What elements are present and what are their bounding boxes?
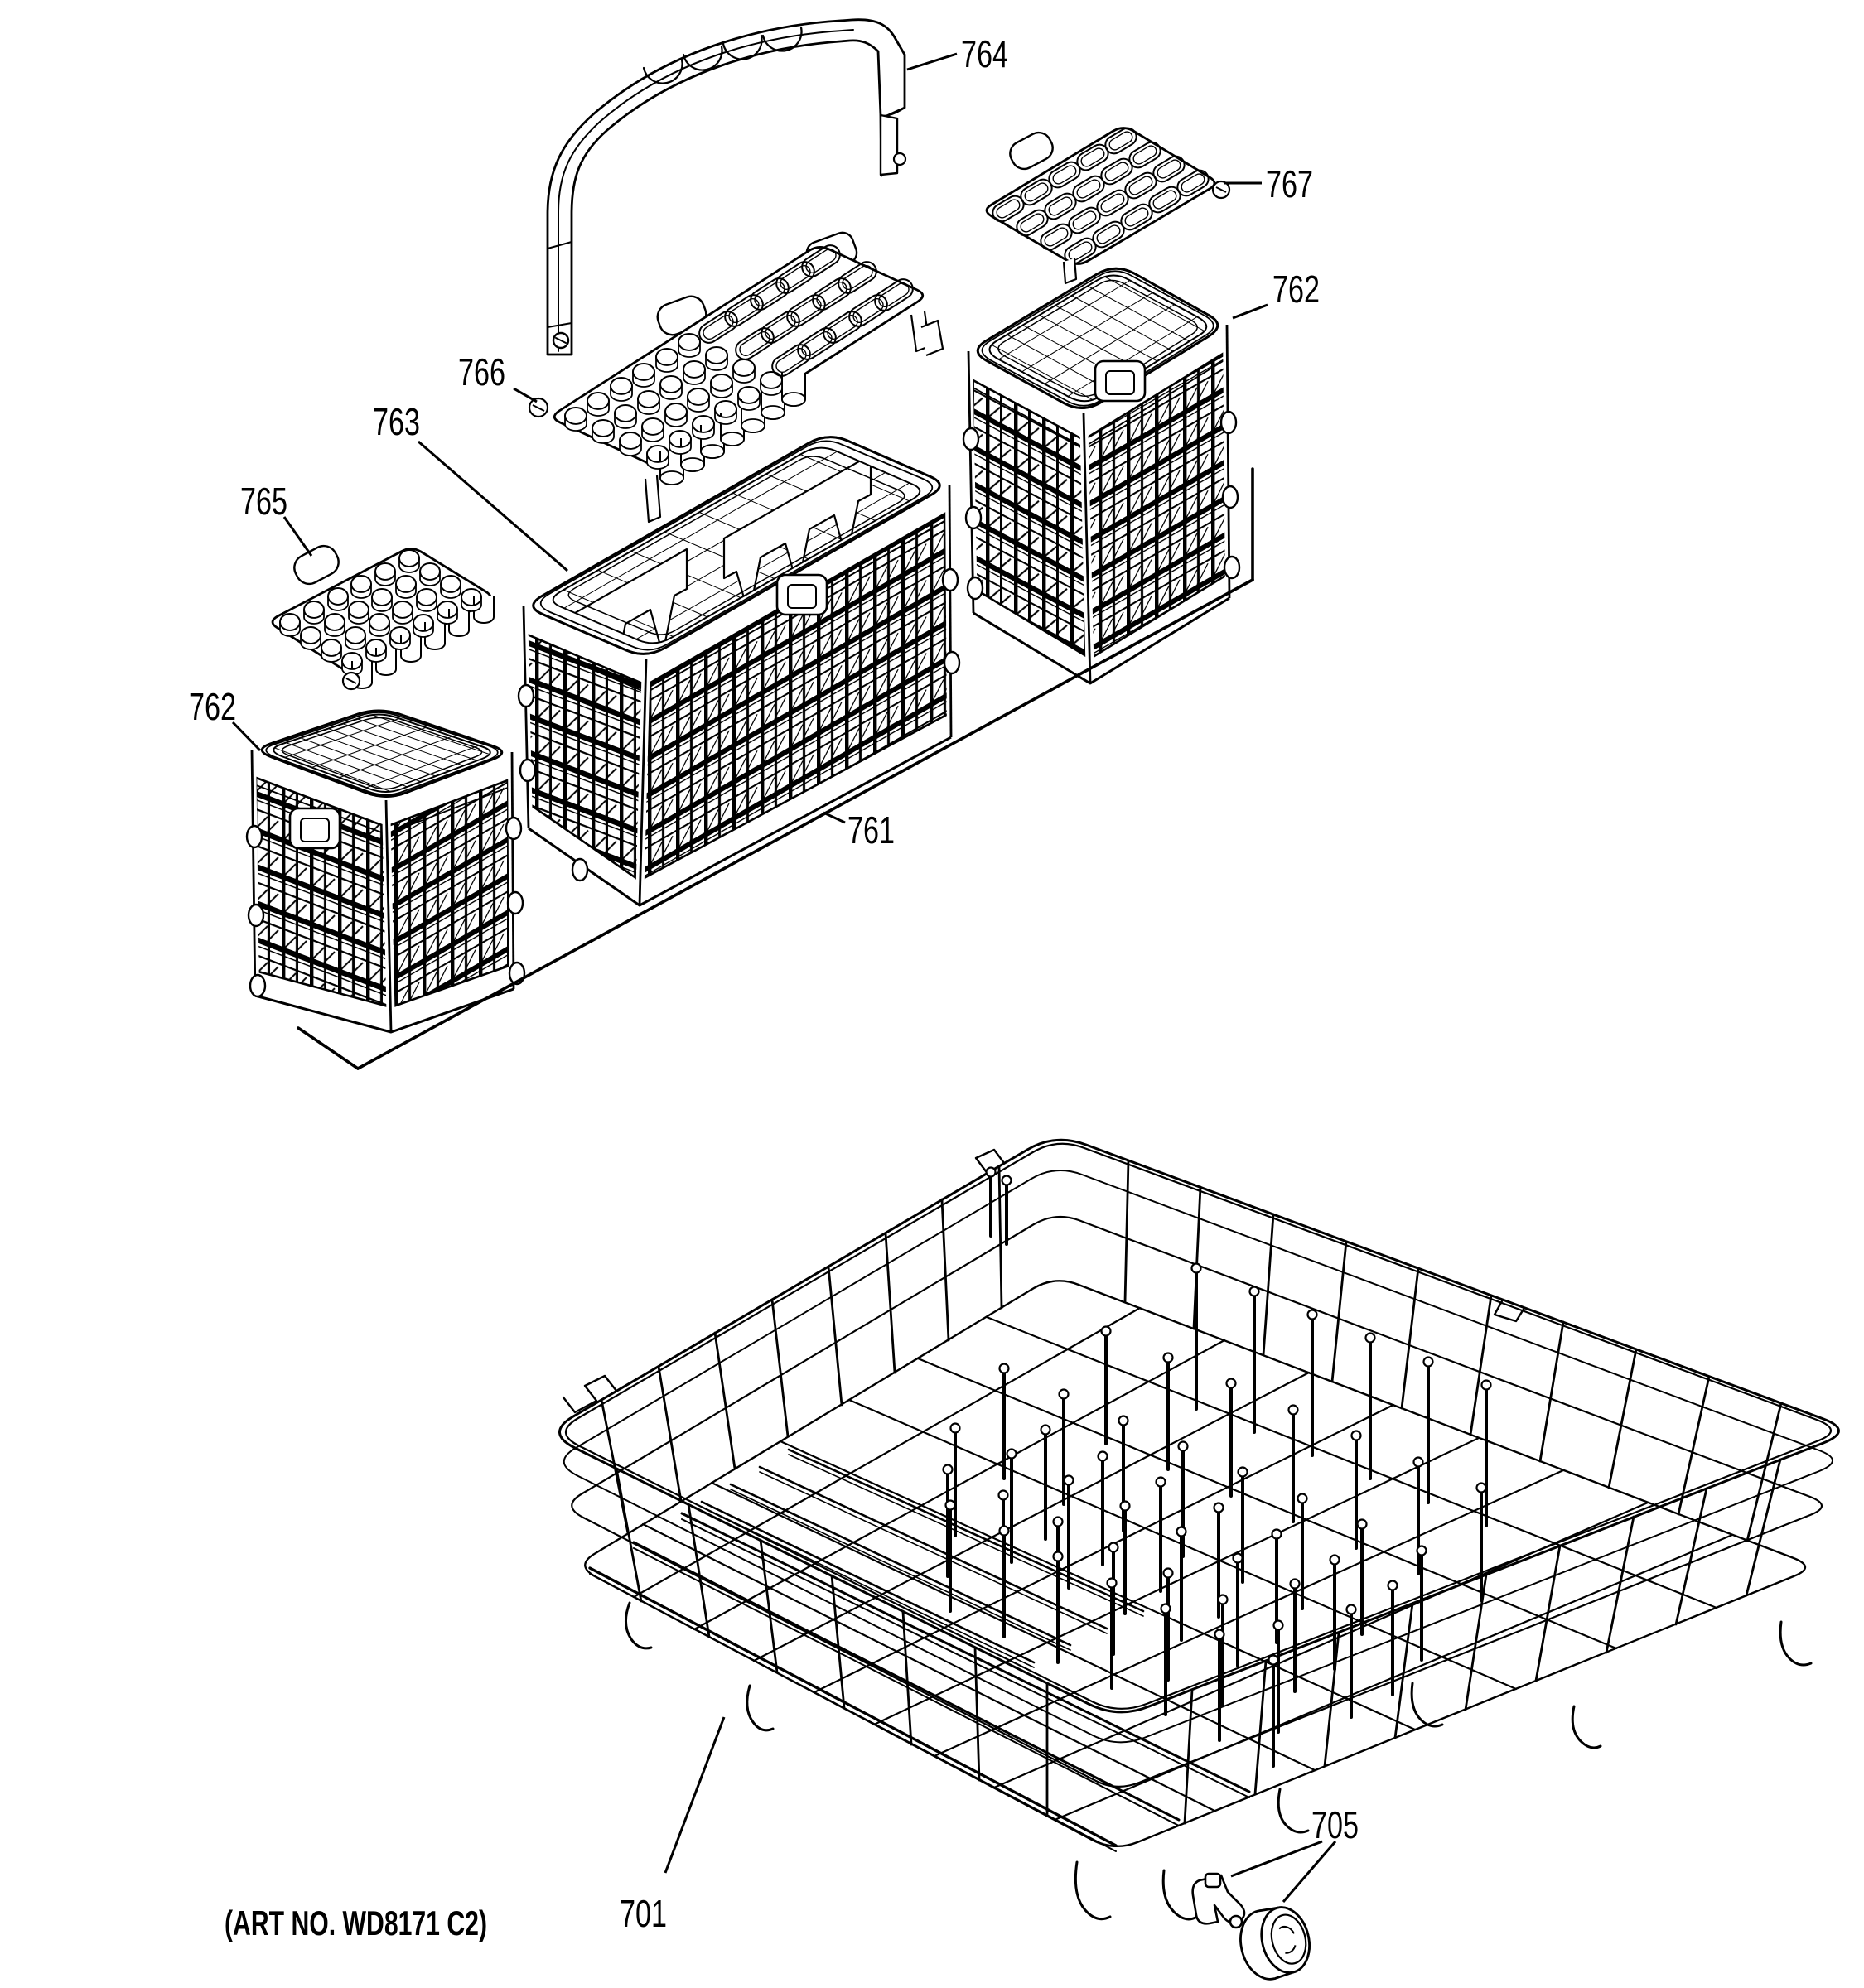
svg-text:766: 766 xyxy=(458,350,505,393)
svg-text:767: 767 xyxy=(1266,162,1313,205)
svg-text:(ART NO. WD8171 C2): (ART NO. WD8171 C2) xyxy=(225,1904,487,1942)
svg-text:765: 765 xyxy=(240,480,287,523)
svg-text:761: 761 xyxy=(847,808,895,852)
svg-text:762: 762 xyxy=(189,685,236,728)
svg-text:764: 764 xyxy=(961,32,1008,75)
svg-text:705: 705 xyxy=(1311,1803,1359,1846)
svg-text:762: 762 xyxy=(1272,268,1320,311)
svg-text:701: 701 xyxy=(620,1892,667,1935)
svg-text:763: 763 xyxy=(373,400,420,443)
